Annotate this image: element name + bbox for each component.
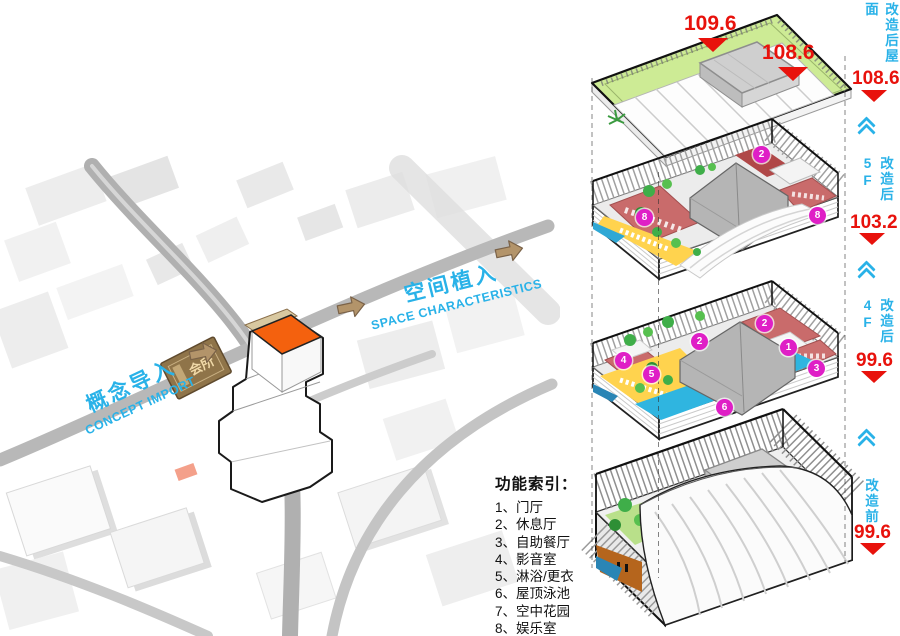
legend-item: 5、淋浴/更衣 — [495, 568, 655, 585]
elevation-arrow-icon — [698, 38, 728, 52]
presentation-board: 会所 概念导入 CONCEPT IMPORT 空间植入 SPACE CHARAC… — [0, 0, 900, 636]
legend-title: 功能索引： — [495, 472, 655, 494]
marker-badge: 8 — [809, 207, 826, 224]
elevation-arrow-icon — [861, 371, 887, 383]
legend-item: 8、娱乐室 — [495, 620, 655, 636]
marker-badge: 2 — [753, 146, 770, 163]
site-map: 会所 — [0, 0, 560, 636]
elevation-value: 108.6 — [762, 41, 815, 65]
elevation-value: 99.6 — [856, 350, 893, 372]
elevation-value: 108.6 — [852, 68, 900, 90]
level-label: 改造前 — [860, 478, 880, 528]
marker-badge: 4 — [615, 352, 632, 369]
elevation-arrow-icon — [861, 90, 887, 102]
legend-item: 2、休息厅 — [495, 516, 655, 533]
elevation-arrow-icon — [860, 543, 886, 555]
marker-badge: 2 — [756, 315, 773, 332]
legend-item: 3、自助餐厅 — [495, 534, 655, 551]
level-label: 改造后屋面 — [860, 2, 900, 76]
legend-item: 4、影音室 — [495, 551, 655, 568]
legend-item: 6、屋顶泳池 — [495, 585, 655, 602]
marker-badge: 5 — [643, 366, 660, 383]
marker-badge: 3 — [808, 360, 825, 377]
up-chevron-icon — [858, 430, 874, 448]
function-index-legend: 功能索引： 1、门厅 2、休息厅 3、自助餐厅 4、影音室 5、淋浴/更衣 6、… — [495, 472, 655, 636]
marker-badge: 8 — [636, 209, 653, 226]
elevation-value: 109.6 — [684, 12, 737, 36]
marker-badge: 2 — [691, 333, 708, 350]
legend-item: 1、门厅 — [495, 499, 655, 516]
wavy-shell — [640, 466, 852, 625]
marker-badge: 6 — [716, 399, 733, 416]
marker-badge: 1 — [780, 339, 797, 356]
up-chevron-icon — [858, 118, 874, 136]
legend-item: 7、空中花园 — [495, 603, 655, 620]
level-label: 改造后5F — [860, 156, 895, 218]
elevation-value: 99.6 — [854, 522, 891, 544]
elevation-value: 103.2 — [850, 212, 898, 234]
up-chevron-icon — [858, 262, 874, 280]
elevation-arrow-icon — [859, 233, 885, 245]
elevation-arrow-icon — [778, 67, 808, 81]
